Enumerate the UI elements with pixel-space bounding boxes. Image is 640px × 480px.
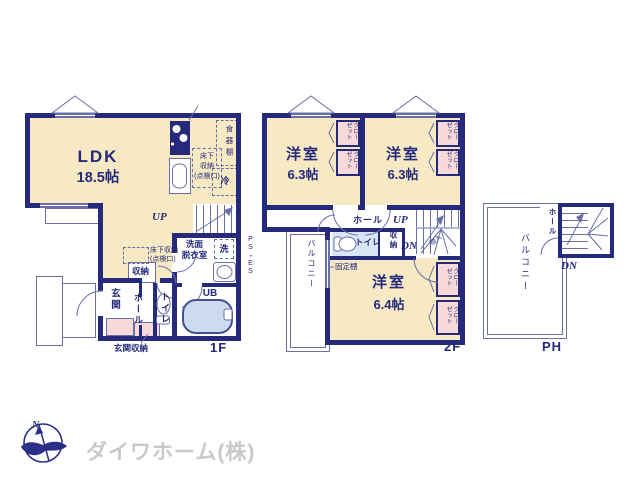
toilet-label-2f: トイレ <box>355 238 381 248</box>
roof-vent-triangle <box>288 96 334 113</box>
folding-door-mark <box>429 304 434 330</box>
stair-fan-line <box>588 218 608 234</box>
stove-burner <box>171 142 174 145</box>
door-arc-entrance <box>77 291 103 316</box>
folding-door-mark <box>329 123 334 143</box>
closet-label: クローゼット <box>439 122 458 145</box>
closet-label: クローゼット <box>439 306 458 329</box>
stair-arrowhead <box>576 213 584 223</box>
folding-door-mark <box>429 123 434 143</box>
door-arc-storage <box>158 266 176 284</box>
washroom-line1: 洗面 <box>186 239 203 249</box>
compass-north-label: N <box>32 420 46 432</box>
hall-label-2f: ホール <box>352 215 384 225</box>
closet-label: クローゼット <box>339 151 358 174</box>
stairs-dn-label-2f: DN <box>401 240 427 253</box>
room-label-ldk: LDK <box>62 147 134 167</box>
balcony-label-2f: バルコニー <box>302 239 316 307</box>
roof-vent-triangle <box>52 96 98 113</box>
bath-label: UB <box>197 288 223 300</box>
roof-vent-triangle <box>393 96 439 113</box>
stove-burner <box>180 134 188 142</box>
stair-arrowhead <box>224 207 233 216</box>
stair-fan-line <box>588 234 608 236</box>
toilet-label-1f: トイレ <box>158 292 170 330</box>
closet-label: クローゼット <box>339 122 358 145</box>
leader-line <box>141 334 148 343</box>
folding-door-mark <box>429 266 434 292</box>
stair-fan-line <box>588 208 603 234</box>
vent-mark <box>189 106 198 120</box>
hall-label-ph: ホール <box>544 208 556 242</box>
room-size-room3: 6.4帖 <box>358 298 420 313</box>
door-arc-toilet-2f <box>318 215 335 232</box>
washer-label: 洗 <box>214 244 234 254</box>
floor-label-1f: 1F <box>210 341 242 356</box>
storage-label-1f: 収納 <box>132 267 156 277</box>
room-size-ldk: 18.5帖 <box>58 170 138 187</box>
balcony-label-ph: バルコニー <box>515 233 530 309</box>
underfloor-kitchen-line1: 床下 <box>200 153 214 160</box>
entrance-storage-label: 玄関収納 <box>114 344 170 354</box>
stair-fan-line <box>588 234 602 250</box>
room-label-room1: 洋室 <box>272 146 334 163</box>
pipe-space-label: PS・ES <box>243 236 254 284</box>
underfloor-kitchen-line2: 収納 <box>200 163 214 170</box>
room-size-room1: 6.3帖 <box>272 168 334 183</box>
floor-plan-canvas: LDK 18.5帖 食器棚 冷 床下 収納 (点検口) 床下収納 (点検口) U… <box>0 0 640 480</box>
bath-faucet <box>224 309 232 320</box>
entrance-label: 玄関 <box>106 288 119 316</box>
storage-label-2f: 収納 <box>385 231 397 257</box>
toilet-bowl-2f <box>339 237 356 251</box>
stairs-up-label-2f: UP <box>393 214 419 227</box>
stairs-dn-label-ph: DN <box>561 260 587 273</box>
company-logo-text: ダイワホーム(株) <box>86 436 286 466</box>
hall-label-1f: ホール <box>131 293 143 331</box>
fixed-shelf-label: 固定棚 <box>335 263 365 272</box>
underfloor-kitchen-line3: (点検口) <box>194 173 220 180</box>
room-label-room3: 洋室 <box>358 274 420 291</box>
stove-burner <box>173 125 181 133</box>
underfloor-hall-line2: (点検口) <box>150 256 176 263</box>
room-label-room2: 洋室 <box>372 146 434 163</box>
closet-label: クローゼット <box>439 151 458 174</box>
stairs-up-label-1f: UP <box>152 211 178 224</box>
closet-label: クローゼット <box>439 268 458 291</box>
sink-basin <box>173 164 187 188</box>
washroom-line2: 脱衣室 <box>182 250 208 260</box>
room-size-room2: 6.3帖 <box>372 168 434 183</box>
underfloor-hall-line1: 床下収納 <box>150 247 178 254</box>
floor-label-2f: 2F <box>444 340 476 355</box>
stair-arrowhead <box>436 215 444 225</box>
floor-label-ph: PH <box>542 340 576 355</box>
dish-shelf-label: 食器棚 <box>220 125 233 163</box>
stair-arrow <box>197 210 230 231</box>
